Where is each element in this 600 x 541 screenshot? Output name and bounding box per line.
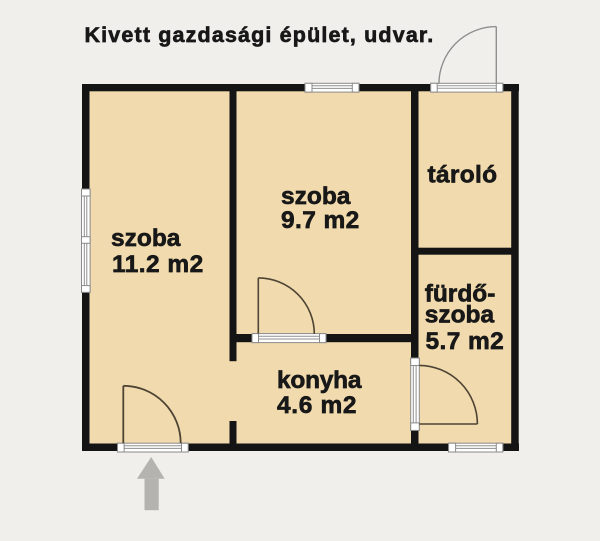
svg-text:4.6 m2: 4.6 m2 [277, 392, 357, 419]
svg-text:konyha: konyha [277, 367, 362, 394]
svg-text:szoba: szoba [281, 183, 351, 210]
svg-text:9.7 m2: 9.7 m2 [281, 207, 360, 234]
svg-text:Kivett gazdasági épület, udvar: Kivett gazdasági épület, udvar. [85, 23, 435, 47]
svg-text:5.7 m2: 5.7 m2 [426, 328, 505, 355]
svg-text:tároló: tároló [428, 162, 498, 189]
svg-text:11.2 m2: 11.2 m2 [112, 251, 204, 278]
svg-text:szoba: szoba [425, 302, 495, 329]
svg-text:szoba: szoba [111, 225, 181, 252]
